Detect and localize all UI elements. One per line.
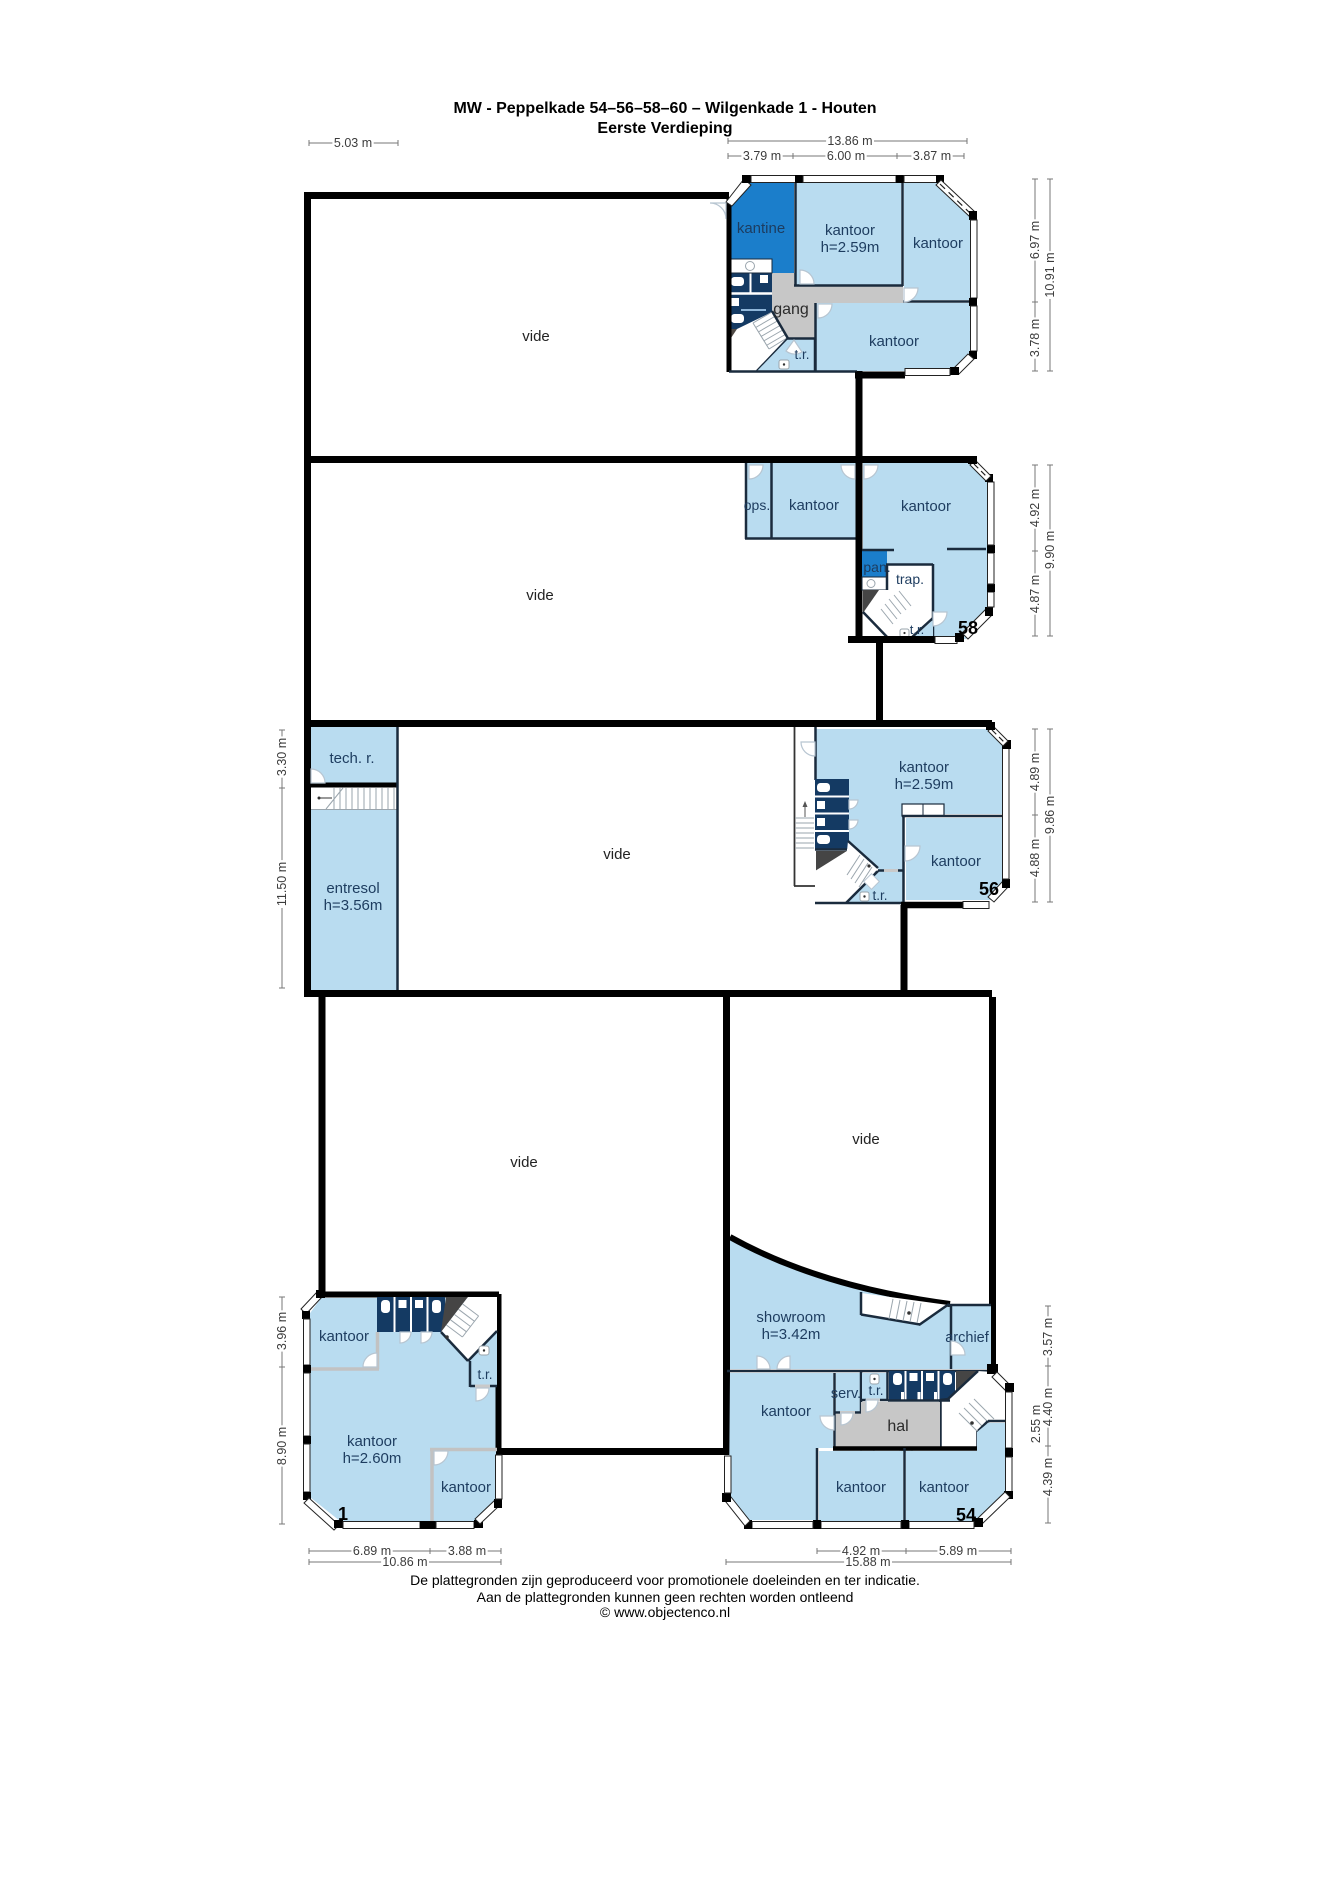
svg-text:kantoor: kantoor: [789, 497, 839, 514]
svg-text:15.88 m: 15.88 m: [845, 1555, 890, 1569]
svg-text:h=2.59m: h=2.59m: [821, 239, 880, 256]
svg-text:9.90 m: 9.90 m: [1043, 531, 1057, 569]
svg-text:10.91 m: 10.91 m: [1043, 252, 1057, 297]
svg-text:vide: vide: [522, 328, 550, 345]
svg-text:58: 58: [958, 618, 978, 638]
svg-text:t.r.: t.r.: [910, 622, 924, 637]
svg-text:tech. r.: tech. r.: [329, 750, 374, 767]
svg-text:vide: vide: [510, 1154, 538, 1171]
svg-text:3.78 m: 3.78 m: [1028, 319, 1042, 357]
svg-text:t.r.: t.r.: [872, 888, 887, 903]
svg-text:pan.: pan.: [863, 559, 890, 575]
svg-text:kantoor: kantoor: [441, 1479, 491, 1496]
svg-text:trap.: trap.: [896, 571, 924, 587]
svg-text:kantoor: kantoor: [761, 1403, 811, 1420]
svg-text:kantoor: kantoor: [919, 1479, 969, 1496]
svg-text:11.50 m: 11.50 m: [275, 862, 289, 906]
svg-text:h=3.42m: h=3.42m: [762, 1326, 821, 1343]
svg-text:5.03 m: 5.03 m: [334, 136, 372, 150]
svg-text:8.90 m: 8.90 m: [275, 1427, 289, 1465]
svg-text:h=2.59m: h=2.59m: [895, 776, 954, 793]
svg-text:4.39 m: 4.39 m: [1041, 1458, 1055, 1496]
svg-text:kantoor: kantoor: [347, 1433, 397, 1450]
svg-text:© www.objectenco.nl: © www.objectenco.nl: [600, 1604, 730, 1620]
svg-text:6.00 m: 6.00 m: [827, 149, 865, 163]
svg-text:entresol: entresol: [326, 880, 379, 897]
svg-text:2.55 m: 2.55 m: [1029, 1405, 1043, 1443]
svg-text:kantoor: kantoor: [931, 853, 981, 870]
svg-text:3.30 m: 3.30 m: [275, 738, 289, 776]
svg-text:h=3.56m: h=3.56m: [324, 897, 383, 914]
svg-text:3.87 m: 3.87 m: [913, 149, 951, 163]
svg-text:ops.: ops.: [744, 497, 770, 513]
svg-text:9.86 m: 9.86 m: [1043, 796, 1057, 834]
svg-text:kantine: kantine: [737, 220, 785, 237]
svg-text:De plattegronden zijn geproduc: De plattegronden zijn geproduceerd voor …: [410, 1572, 920, 1588]
svg-text:gang: gang: [773, 301, 809, 318]
svg-text:4.88 m: 4.88 m: [1028, 839, 1042, 877]
svg-text:kantoor: kantoor: [869, 333, 919, 350]
svg-text:hal: hal: [887, 1418, 908, 1435]
svg-text:13.86 m: 13.86 m: [827, 134, 872, 148]
svg-text:4.87 m: 4.87 m: [1028, 575, 1042, 613]
svg-text:showroom: showroom: [756, 1309, 825, 1326]
svg-text:vide: vide: [852, 1131, 880, 1148]
svg-text:serv.: serv.: [831, 1386, 861, 1402]
svg-text:kantoor: kantoor: [913, 235, 963, 252]
svg-text:vide: vide: [603, 846, 631, 863]
svg-text:4.40 m: 4.40 m: [1041, 1388, 1055, 1426]
svg-text:kantoor: kantoor: [899, 759, 949, 776]
svg-text:6.97 m: 6.97 m: [1028, 221, 1042, 259]
svg-text:56: 56: [979, 879, 999, 899]
svg-text:MW - Peppelkade 54–56–58–60 –: MW - Peppelkade 54–56–58–60 – Wilgenkade…: [453, 100, 876, 117]
svg-text:5.89 m: 5.89 m: [939, 1544, 977, 1558]
svg-text:h=2.60m: h=2.60m: [343, 1450, 402, 1467]
svg-text:t.r.: t.r.: [868, 1383, 883, 1398]
svg-text:10.86 m: 10.86 m: [382, 1555, 427, 1569]
svg-text:kantoor: kantoor: [836, 1479, 886, 1496]
svg-text:kantoor: kantoor: [901, 498, 951, 515]
svg-text:Eerste Verdieping: Eerste Verdieping: [597, 120, 732, 137]
svg-text:kantoor: kantoor: [825, 222, 875, 239]
svg-text:t.r.: t.r.: [794, 347, 809, 362]
svg-text:kantoor: kantoor: [319, 1328, 369, 1345]
svg-text:vide: vide: [526, 587, 554, 604]
svg-text:3.57 m: 3.57 m: [1041, 1318, 1055, 1356]
svg-text:3.79 m: 3.79 m: [743, 149, 781, 163]
svg-text:3.88 m: 3.88 m: [448, 1544, 486, 1558]
svg-text:3.96 m: 3.96 m: [275, 1312, 289, 1350]
svg-text:4.89 m: 4.89 m: [1028, 753, 1042, 791]
svg-text:t.r.: t.r.: [477, 1367, 492, 1382]
svg-text:4.92 m: 4.92 m: [1028, 489, 1042, 527]
svg-text:Aan de plattegronden kunnen ge: Aan de plattegronden kunnen geen rechten…: [477, 1589, 854, 1605]
